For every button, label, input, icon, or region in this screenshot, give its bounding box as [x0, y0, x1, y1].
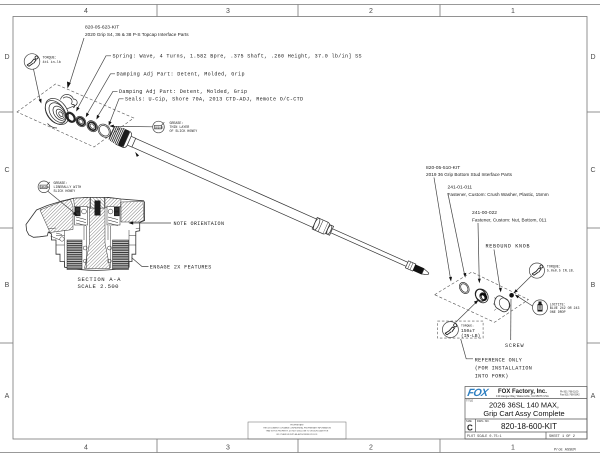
- svg-text:OR OTHER EXCEPT AS AUTHORIZED: OR OTHER EXCEPT AS AUTHORIZED BY FOX.: [276, 433, 318, 436]
- svg-text:241-00-022: 241-00-022: [472, 210, 497, 216]
- svg-text:150±7: 150±7: [461, 328, 475, 334]
- svg-text:NOTE ORIENTAION: NOTE ORIENTAION: [174, 221, 225, 227]
- svg-text:Fastener, Custom: Nut, Bottom,: Fastener, Custom: Nut, Bottom, 011: [472, 217, 547, 222]
- svg-text:Fastener, Custom: Crush Washer: Fastener, Custom: Crush Washer, Plastic,…: [448, 192, 549, 197]
- svg-text:Fax 831-768-9342: Fax 831-768-9342: [560, 394, 580, 397]
- svg-text:REBOUND KNOB: REBOUND KNOB: [486, 244, 530, 250]
- svg-text:Damping Adj Part: Detent, Mold: Damping Adj Part: Detent, Molded, Grip: [117, 71, 245, 77]
- svg-text:820-18-600-KIT: 820-18-600-KIT: [501, 422, 557, 431]
- svg-text:TORQUE:: TORQUE:: [461, 324, 474, 328]
- svg-text:B: B: [5, 282, 10, 289]
- svg-text:FOX: FOX: [466, 387, 490, 399]
- svg-text:B: B: [591, 282, 596, 289]
- svg-text:5.0±0.5 IN.LB.: 5.0±0.5 IN.LB.: [547, 269, 575, 273]
- svg-text:REFERENCE ONLY: REFERENCE ONLY: [475, 358, 522, 364]
- svg-text:D: D: [590, 54, 595, 61]
- svg-text:THAT IS FOX PROPERTY. DO NOT D: THAT IS FOX PROPERTY. DO NOT DISCLOSE TO…: [266, 430, 329, 433]
- svg-text:D: D: [4, 54, 9, 61]
- svg-text:INTO FORK): INTO FORK): [475, 373, 509, 379]
- svg-text:OF SLICK HONEY: OF SLICK HONEY: [170, 129, 198, 133]
- svg-text:3: 3: [226, 8, 230, 15]
- svg-text:A: A: [591, 393, 596, 400]
- svg-text:4±1 in-lb: 4±1 in-lb: [43, 60, 61, 65]
- svg-text:2019 36 Grip Bottom Stud Inter: 2019 36 Grip Bottom Stud Interface Parts: [426, 172, 513, 177]
- svg-text:3: 3: [226, 445, 230, 452]
- svg-text:GREASE: GREASE: [41, 186, 50, 189]
- svg-text:THIS DOCUMENT CONTAINS CONFIDE: THIS DOCUMENT CONTAINS CONFIDENTIAL PROP…: [263, 427, 331, 430]
- svg-text:ENGAGE 2X FEATURES: ENGAGE 2X FEATURES: [150, 264, 212, 270]
- svg-text:SIZE: SIZE: [466, 419, 472, 423]
- svg-text:820-05-510-KIT: 820-05-510-KIT: [426, 165, 460, 171]
- svg-text:241-01-011: 241-01-011: [448, 185, 473, 191]
- svg-text:PLOT SCALE 0.75:1: PLOT SCALE 0.75:1: [467, 435, 502, 439]
- svg-text:1: 1: [511, 8, 515, 15]
- svg-text:PROPRIETARY: PROPRIETARY: [290, 424, 304, 427]
- svg-text:C: C: [590, 167, 595, 174]
- svg-text:Grip Cart Assy Complete: Grip Cart Assy Complete: [483, 409, 564, 418]
- svg-text:4: 4: [84, 8, 88, 15]
- svg-text:C: C: [467, 424, 473, 433]
- svg-text:2: 2: [369, 8, 373, 15]
- svg-text:820-05-623-KIT: 820-05-623-KIT: [85, 25, 119, 31]
- svg-text:SHEET 1 OF 2: SHEET 1 OF 2: [549, 435, 575, 439]
- svg-text:DWG. NO.: DWG. NO.: [477, 419, 490, 423]
- svg-text:ONE DROP: ONE DROP: [550, 310, 566, 314]
- svg-text:2020 Grip S4, 36 & 38 P-S Top: 2020 Grip S4, 36 & 38 P-S Topcap Interfa…: [85, 32, 189, 37]
- svg-text:C: C: [4, 167, 9, 174]
- svg-text:Seals: U-Cip, Shore 70A, 2013: Seals: U-Cip, Shore 70A, 2013 CTD-ADJ, R…: [125, 96, 303, 102]
- svg-text:ProE ASSEM: ProE ASSEM: [554, 448, 576, 453]
- svg-text:SCREW: SCREW: [505, 343, 524, 349]
- svg-text:4: 4: [84, 445, 88, 452]
- svg-text:Spring: Wave, 4 Turns, 1.582 B: Spring: Wave, 4 Turns, 1.582 Bpre, .375 …: [113, 53, 362, 59]
- svg-text:130 Hangar Way, Watsonville, C: 130 Hangar Way, Watsonville, CA 95076 US…: [496, 394, 549, 398]
- svg-text:2: 2: [369, 445, 373, 452]
- svg-text:Damping Adj Part: Detent, Mold: Damping Adj Part: Detent, Molded, Grip: [119, 89, 247, 95]
- svg-text:TITLE: TITLE: [466, 399, 473, 403]
- svg-text:A: A: [5, 393, 10, 400]
- svg-text:SLICK HONEY: SLICK HONEY: [54, 189, 76, 193]
- svg-text:(IN-LB): (IN-LB): [461, 333, 480, 339]
- svg-text:1: 1: [511, 445, 515, 452]
- svg-text:GREASE: GREASE: [155, 126, 164, 129]
- svg-text:(FOR INSTALLATION: (FOR INSTALLATION: [475, 366, 532, 372]
- svg-text:SCALE 2.500: SCALE 2.500: [78, 283, 120, 290]
